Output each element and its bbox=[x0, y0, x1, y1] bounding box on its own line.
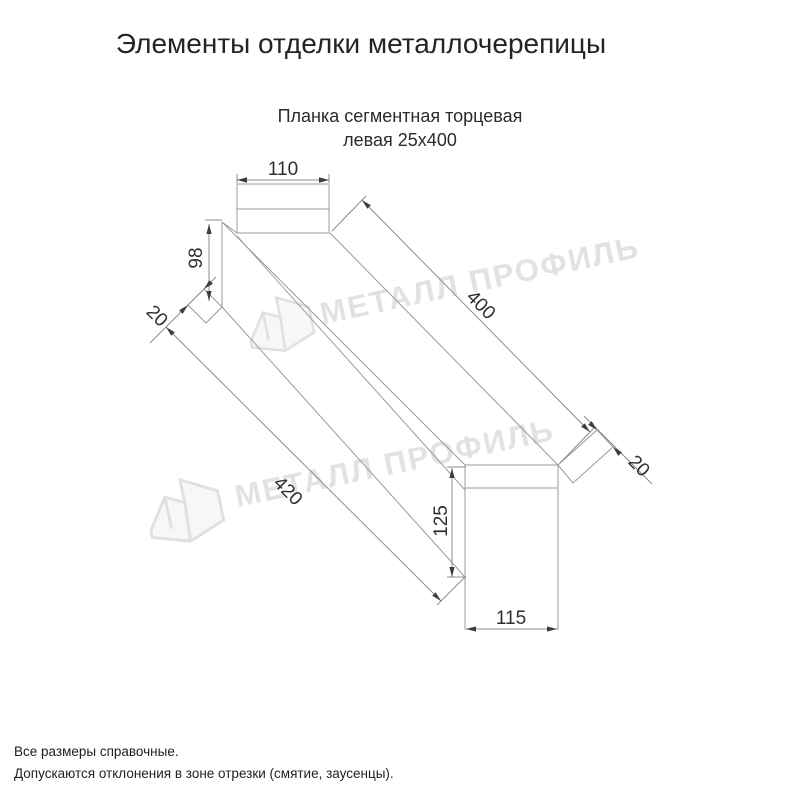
dim-110-label: 110 bbox=[268, 159, 298, 180]
metall-profil-logo-icon bbox=[142, 473, 227, 549]
metall-profil-logo-icon bbox=[243, 291, 317, 357]
dim-98-label: 98 bbox=[186, 247, 207, 268]
technical-drawing-svg: МЕТАЛЛ ПРОФИЛЬ МЕТАЛЛ ПРОФИЛЬ bbox=[0, 0, 800, 800]
far-hem-outline bbox=[188, 289, 222, 323]
dim-115: 115 bbox=[466, 608, 557, 632]
footnote-line-1: Все размеры справочные. bbox=[14, 741, 394, 763]
watermark-lower: МЕТАЛЛ ПРОФИЛЬ bbox=[142, 402, 561, 549]
catalog-page: Элементы отделки металлочерепицы Планка … bbox=[0, 0, 800, 800]
dim-115-label: 115 bbox=[496, 608, 526, 629]
watermark-upper: МЕТАЛЛ ПРОФИЛЬ bbox=[243, 221, 645, 357]
footnotes: Все размеры справочные. Допускаются откл… bbox=[14, 741, 394, 785]
dim-125: 125 bbox=[431, 467, 466, 577]
dim-20-left: 20 bbox=[142, 277, 216, 343]
dim-20-left-label: 20 bbox=[142, 301, 172, 331]
dim-110: 110 bbox=[237, 159, 329, 183]
dim-20-right-label: 20 bbox=[624, 451, 654, 481]
dim-125-label: 125 bbox=[431, 505, 452, 537]
dimensions: 110 98 20 400 bbox=[142, 159, 654, 632]
end-face-outline bbox=[465, 465, 558, 629]
dim-400: 400 bbox=[332, 196, 594, 463]
footnote-line-2: Допускаются отклонения в зоне отрезки (с… bbox=[14, 763, 394, 785]
dim-20-right: 20 bbox=[584, 416, 654, 484]
